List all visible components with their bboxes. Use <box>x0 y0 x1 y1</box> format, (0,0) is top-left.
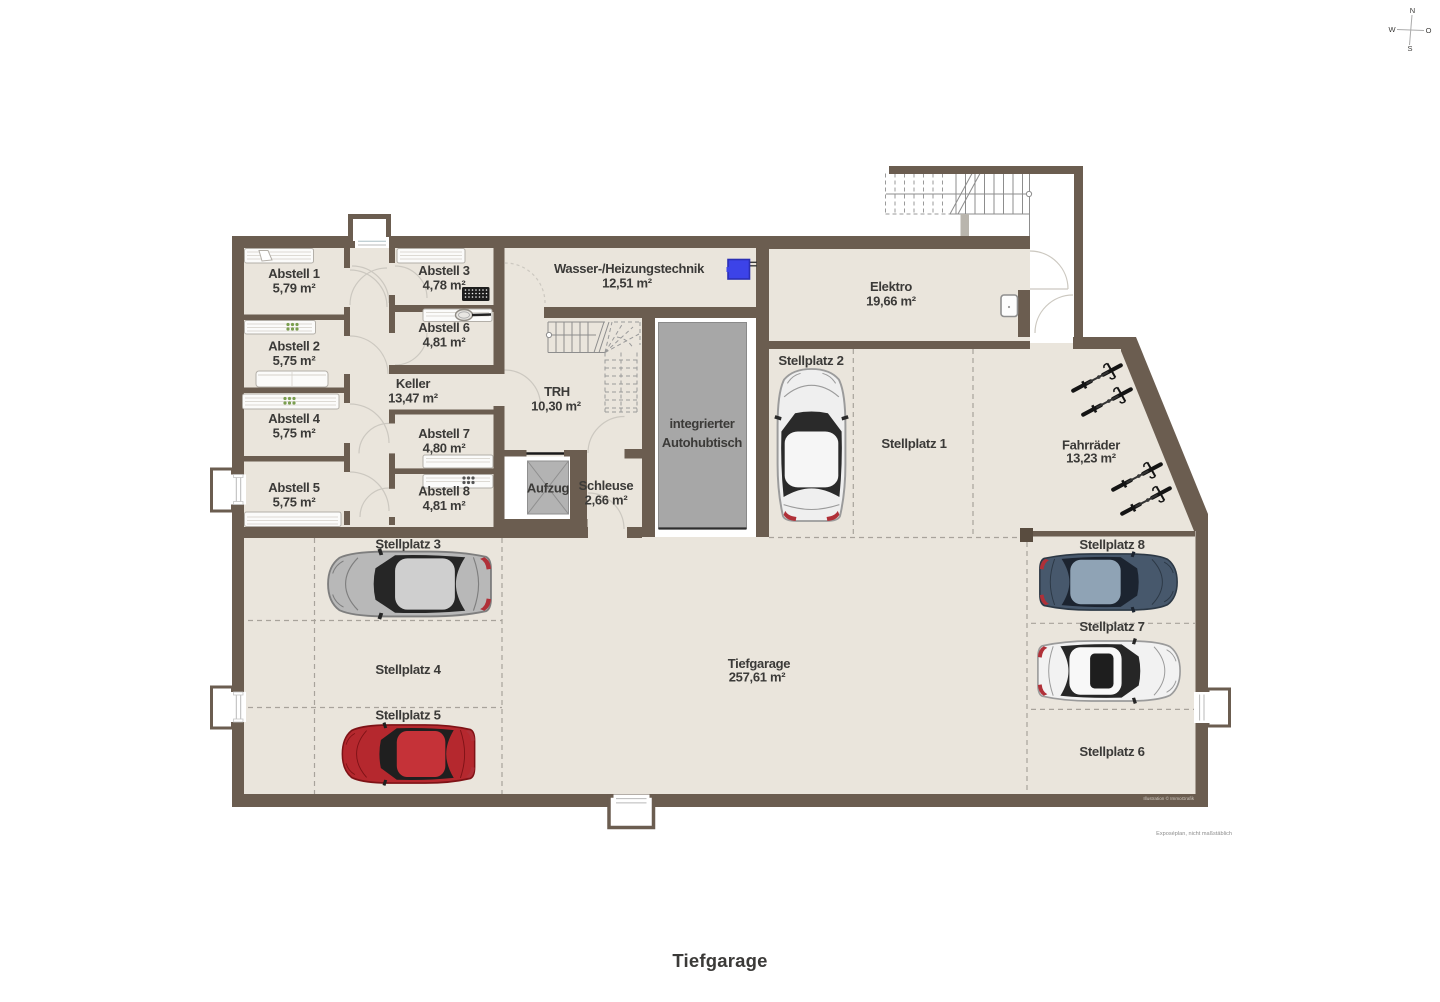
svg-text:Abstell 4: Abstell 4 <box>268 411 321 426</box>
svg-text:2,66 m²: 2,66 m² <box>585 493 629 508</box>
svg-text:Stellplatz 2: Stellplatz 2 <box>778 353 843 368</box>
svg-text:19,66 m²: 19,66 m² <box>866 294 917 309</box>
svg-text:4,81 m²: 4,81 m² <box>423 498 467 513</box>
svg-text:13,23 m²: 13,23 m² <box>1066 451 1117 466</box>
svg-text:integrierter: integrierter <box>669 416 734 431</box>
svg-text:Stellplatz 7: Stellplatz 7 <box>1079 619 1144 634</box>
svg-text:4,78 m²: 4,78 m² <box>423 278 467 293</box>
svg-text:Abstell 7: Abstell 7 <box>418 426 470 441</box>
svg-text:Exposéplan, nicht maßstäblich: Exposéplan, nicht maßstäblich <box>1156 831 1232 837</box>
svg-text:Abstell 2: Abstell 2 <box>268 339 320 354</box>
svg-text:Stellplatz 3: Stellplatz 3 <box>375 537 440 552</box>
svg-text:Schleuse: Schleuse <box>579 478 634 493</box>
svg-text:Illustration © ImmoGrafik: Illustration © ImmoGrafik <box>1143 795 1194 801</box>
svg-text:257,61 m²: 257,61 m² <box>729 670 787 685</box>
svg-text:Stellplatz 6: Stellplatz 6 <box>1079 744 1144 759</box>
svg-text:5,75 m²: 5,75 m² <box>273 495 317 510</box>
svg-text:Autohubtisch: Autohubtisch <box>662 435 743 450</box>
svg-text:4,81 m²: 4,81 m² <box>423 335 467 350</box>
svg-text:5,75 m²: 5,75 m² <box>273 426 317 441</box>
svg-text:O: O <box>1426 26 1432 35</box>
svg-text:5,75 m²: 5,75 m² <box>273 353 317 368</box>
svg-text:Abstell 1: Abstell 1 <box>268 266 320 281</box>
svg-text:Abstell 8: Abstell 8 <box>418 484 470 499</box>
svg-text:Abstell 5: Abstell 5 <box>268 480 320 495</box>
svg-text:S: S <box>1407 44 1412 53</box>
svg-text:Wasser-/Heizungstechnik: Wasser-/Heizungstechnik <box>554 261 705 276</box>
svg-text:N: N <box>1410 6 1415 15</box>
svg-text:Elektro: Elektro <box>870 279 912 294</box>
svg-text:W: W <box>1388 25 1396 34</box>
svg-text:Abstell 3: Abstell 3 <box>418 263 470 278</box>
svg-text:Aufzug: Aufzug <box>527 481 570 496</box>
svg-text:12,51 m²: 12,51 m² <box>602 276 653 291</box>
svg-text:Stellplatz 4: Stellplatz 4 <box>375 662 441 677</box>
svg-text:Keller: Keller <box>396 376 431 391</box>
svg-text:Stellplatz 8: Stellplatz 8 <box>1079 537 1144 552</box>
svg-text:4,80 m²: 4,80 m² <box>423 441 467 456</box>
svg-text:10,30 m²: 10,30 m² <box>531 399 582 414</box>
svg-text:Stellplatz 5: Stellplatz 5 <box>375 708 440 723</box>
svg-text:Stellplatz 1: Stellplatz 1 <box>881 436 946 451</box>
svg-text:Abstell 6: Abstell 6 <box>418 320 470 335</box>
svg-text:13,47 m²: 13,47 m² <box>388 391 439 406</box>
svg-text:5,79 m²: 5,79 m² <box>273 281 317 296</box>
svg-text:TRH: TRH <box>544 384 570 399</box>
svg-text:Tiefgarage: Tiefgarage <box>672 950 767 971</box>
